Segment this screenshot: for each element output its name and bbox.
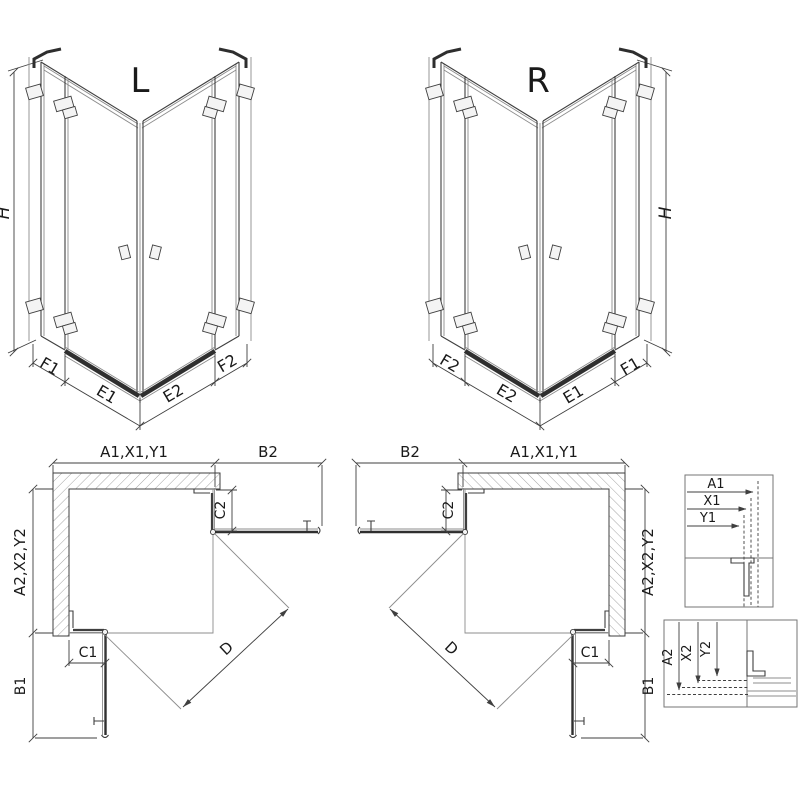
dim-label-d-right: D xyxy=(441,638,462,659)
dim-label-a1x1y1-left: A1,X1,Y1 xyxy=(100,443,168,461)
dim-label-a2x2y2-left: A2,X2,Y2 xyxy=(11,528,29,596)
profile-section-bottom-bars xyxy=(747,678,796,696)
technical-drawing-canvas: L H F1 E1 E2 F2 R H F2 E2 E1 F1 A1,X1,Y1… xyxy=(0,0,800,800)
dim-label-b1-left: B1 xyxy=(13,677,29,696)
profile-section-bottom xyxy=(747,651,765,676)
dim-label-a2-detail: A2 xyxy=(661,648,676,665)
dim-label-f1-left: F1 xyxy=(37,353,63,379)
iso-view-right: R H F2 E2 E1 F1 xyxy=(426,49,676,430)
view-label-left: L xyxy=(131,61,150,101)
dim-label-c1-left: C1 xyxy=(79,645,98,661)
dim-label-y1-detail: Y1 xyxy=(699,511,716,526)
dim-label-e1-left: E1 xyxy=(93,381,120,408)
dim-label-a1x1y1-right: A1,X1,Y1 xyxy=(510,443,578,461)
dim-label-y2-detail: Y2 xyxy=(699,641,714,658)
dim-label-d-left: D xyxy=(216,638,237,659)
dim-label-h-right: H xyxy=(656,206,676,219)
dim-label-f2-right: F2 xyxy=(437,350,463,376)
plan-right-geometry xyxy=(352,459,649,742)
dim-label-c2-left: C2 xyxy=(213,501,229,520)
dim-label-a1-detail: A1 xyxy=(707,477,724,492)
detail-box-bottom: A2 X2 Y2 xyxy=(661,620,797,707)
plan-view-right: B2 A1,X1,Y1 A2,X2,Y2 C2 C1 B1 D xyxy=(352,443,657,742)
dim-label-x1-detail: X1 xyxy=(703,494,720,509)
plan-left-geometry xyxy=(29,459,326,742)
dim-label-c1-right: C1 xyxy=(581,645,600,661)
dim-label-x2-detail: X2 xyxy=(680,644,695,661)
dim-label-f2-left: F2 xyxy=(214,350,240,376)
dim-label-h-left: H xyxy=(0,206,14,219)
dim-label-b2-right: B2 xyxy=(400,443,420,461)
dim-label-a2x2y2-right: A2,X2,Y2 xyxy=(639,528,657,596)
dim-label-b1-right: B1 xyxy=(641,677,657,696)
dim-label-b2-left: B2 xyxy=(258,443,278,461)
view-label-right: R xyxy=(526,61,550,101)
dim-label-f1-right: F1 xyxy=(617,353,643,379)
dim-label-c2-right: C2 xyxy=(441,501,457,520)
plan-view-left: A1,X1,Y1 B2 A2,X2,Y2 C2 C1 B1 D xyxy=(11,443,326,742)
detail-box-top: A1 X1 Y1 xyxy=(685,475,773,607)
iso-view-left: L H F1 E1 E2 F2 xyxy=(0,49,254,430)
shower-enclosure-drawing: L H F1 E1 E2 F2 R H F2 E2 E1 F1 A1,X1,Y1… xyxy=(0,0,800,800)
dim-label-e1-right: E1 xyxy=(560,381,587,408)
